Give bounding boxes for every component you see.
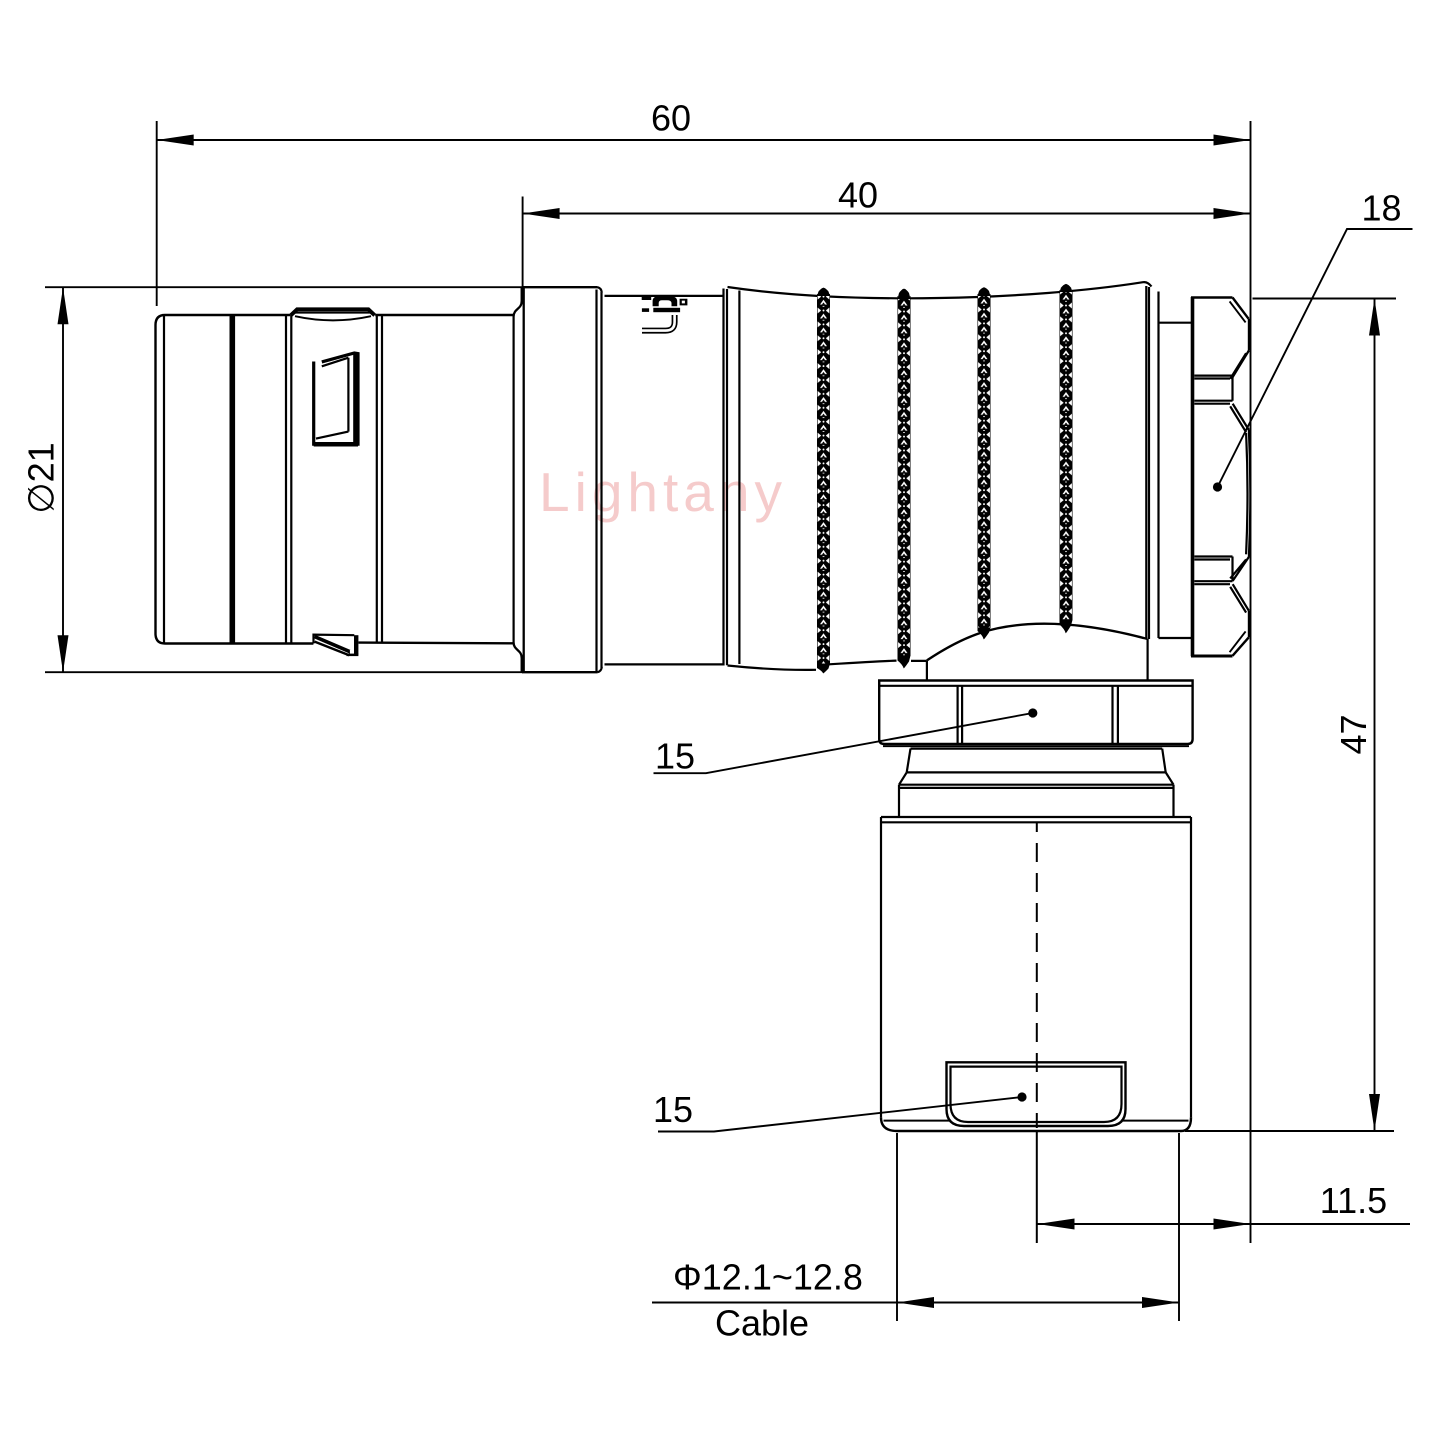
svg-text:Φ12.1~12.8: Φ12.1~12.8 xyxy=(673,1257,863,1298)
svg-text:60: 60 xyxy=(651,98,691,139)
svg-text:11.5: 11.5 xyxy=(1320,1180,1387,1221)
svg-text:Lightany: Lightany xyxy=(539,461,787,523)
svg-text:15: 15 xyxy=(653,1089,693,1130)
svg-text:15: 15 xyxy=(655,736,695,777)
svg-text:40: 40 xyxy=(838,175,878,216)
svg-text:Cable: Cable xyxy=(715,1303,809,1344)
svg-text:∅21: ∅21 xyxy=(21,442,62,513)
svg-text:18: 18 xyxy=(1361,188,1401,229)
svg-text:47: 47 xyxy=(1333,714,1374,754)
